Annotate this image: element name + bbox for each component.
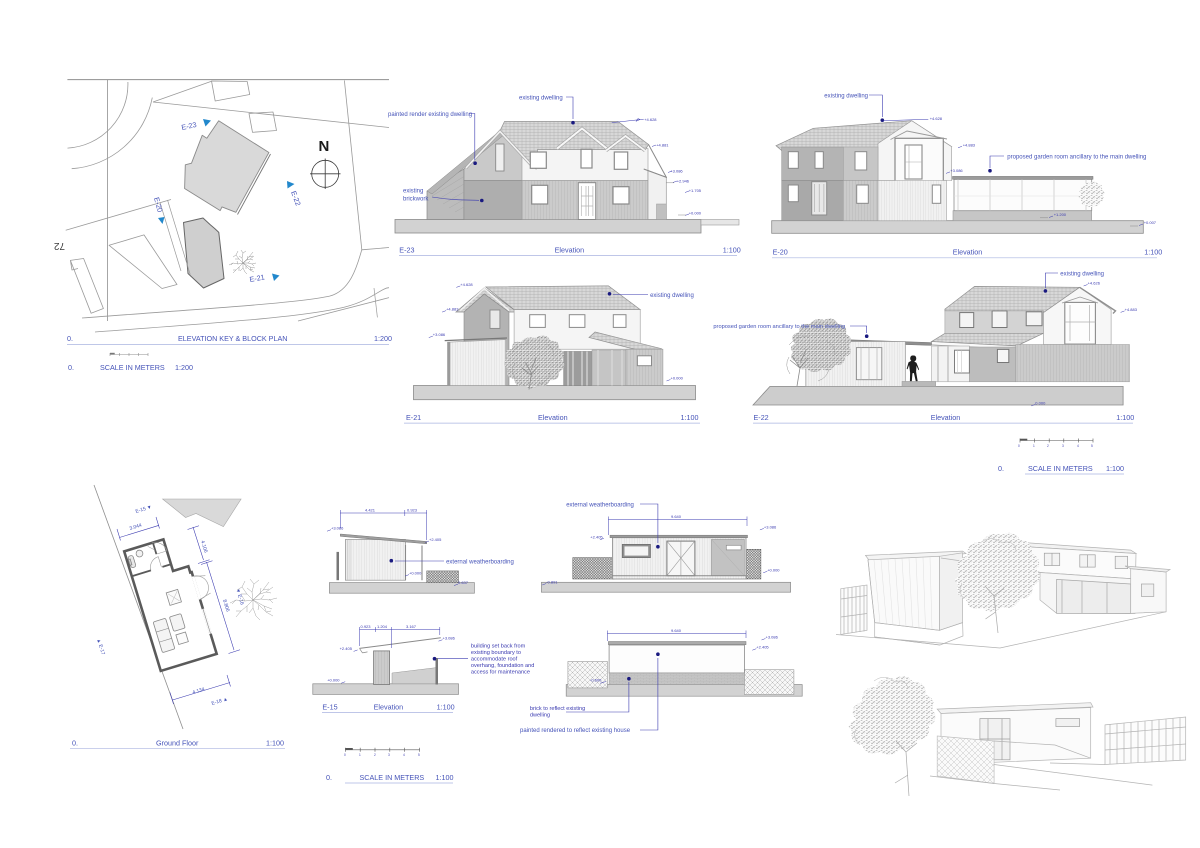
svg-text:+3.086: +3.086: [331, 526, 344, 531]
svg-text:3: 3: [388, 753, 390, 757]
svg-text:+3.086: +3.086: [670, 169, 683, 174]
svg-text:1: 1: [1033, 444, 1035, 448]
svg-text:external weatherboarding: external weatherboarding: [566, 503, 634, 509]
svg-text:1:100: 1:100: [266, 739, 284, 748]
svg-text:1:100: 1:100: [1106, 464, 1124, 473]
svg-text:existing dwelling: existing dwelling: [650, 293, 694, 299]
svg-text:Elevation: Elevation: [538, 413, 568, 422]
svg-text:+2.405: +2.405: [756, 645, 769, 650]
svg-text:access for maintenance: access for maintenance: [471, 670, 530, 676]
svg-text:+1.200: +1.200: [1054, 212, 1067, 217]
svg-text:existing: existing: [403, 189, 423, 195]
svg-text:1:100: 1:100: [436, 773, 454, 782]
svg-text:+4.628: +4.628: [460, 282, 473, 287]
svg-text:5: 5: [418, 753, 420, 757]
svg-text:painted render existing dwelli: painted render existing dwelling: [388, 112, 472, 118]
svg-text:+0.000: +0.000: [767, 567, 780, 572]
svg-text:9.640: 9.640: [671, 628, 682, 633]
svg-text:+3.086: +3.086: [764, 524, 777, 529]
svg-text:Elevation: Elevation: [953, 248, 983, 257]
svg-text:0.: 0.: [67, 334, 73, 343]
svg-text:Elevation: Elevation: [555, 246, 585, 255]
svg-text:ELEVATION KEY & BLOCK PLAN: ELEVATION KEY & BLOCK PLAN: [178, 334, 287, 343]
svg-text:1:100: 1:100: [723, 246, 741, 255]
svg-text:4: 4: [1077, 444, 1079, 448]
svg-text:+2.405: +2.405: [429, 537, 442, 542]
svg-text:E-15: E-15: [322, 703, 337, 712]
svg-text:brick to reflect existing: brick to reflect existing: [530, 706, 585, 712]
svg-text:Ground Floor: Ground Floor: [156, 739, 199, 748]
svg-text:+3.086: +3.086: [433, 332, 446, 337]
svg-text:+2.946: +2.946: [677, 178, 690, 183]
svg-text:overhang, foundation and: overhang, foundation and: [471, 663, 534, 669]
svg-text:+2.405: +2.405: [590, 534, 603, 539]
svg-text:0.000: 0.000: [1035, 400, 1046, 405]
svg-text:3.167: 3.167: [406, 624, 417, 629]
svg-text:+1.705: +1.705: [689, 188, 702, 193]
svg-text:building set back from: building set back from: [471, 644, 526, 650]
svg-text:1:100: 1:100: [681, 413, 699, 422]
svg-text:1:200: 1:200: [175, 363, 193, 372]
svg-text:0: 0: [1018, 444, 1020, 448]
svg-text:SCALE IN METERS: SCALE IN METERS: [360, 773, 425, 782]
svg-text:existing dwelling: existing dwelling: [519, 96, 563, 102]
svg-text:+4.628: +4.628: [644, 117, 657, 122]
svg-text:2: 2: [374, 753, 376, 757]
svg-text:0: 0: [344, 753, 346, 757]
svg-text:proposed garden room ancillary: proposed garden room ancillary to the ma…: [1007, 155, 1146, 161]
svg-text:9.640: 9.640: [671, 514, 682, 519]
svg-text:SCALE IN METERS: SCALE IN METERS: [1028, 464, 1093, 473]
svg-text:SCALE IN METERS: SCALE IN METERS: [100, 363, 165, 372]
svg-text:E-21: E-21: [406, 413, 421, 422]
svg-text:-0.891: -0.891: [546, 580, 558, 585]
svg-text:existing boundary to: existing boundary to: [471, 650, 521, 656]
svg-text:+4.883: +4.883: [1125, 307, 1138, 312]
svg-text:+3.086: +3.086: [766, 635, 779, 640]
svg-text:1:100: 1:100: [1144, 248, 1162, 257]
svg-text:+3.086: +3.086: [443, 636, 456, 641]
svg-text:painted rendered to reflect ex: painted rendered to reflect existing hou…: [520, 728, 631, 734]
svg-text:+0.000: +0.000: [327, 678, 340, 683]
svg-text:proposed garden room ancillary: proposed garden room ancillary to the ma…: [713, 324, 845, 330]
svg-text:E-20: E-20: [773, 248, 788, 257]
svg-text:1: 1: [359, 753, 361, 757]
svg-text:+4.626: +4.626: [1088, 281, 1101, 286]
svg-text:E-22: E-22: [754, 413, 769, 422]
svg-text:1:100: 1:100: [1116, 413, 1134, 422]
svg-text:+0.007: +0.007: [1144, 220, 1157, 225]
svg-text:E-23: E-23: [399, 246, 414, 255]
svg-text:+0.000: +0.000: [671, 376, 684, 381]
svg-text:dwelling: dwelling: [530, 713, 550, 719]
svg-text:-0.600: -0.600: [590, 678, 602, 683]
svg-text:0.923: 0.923: [407, 508, 418, 513]
svg-text:0.637: 0.637: [458, 580, 469, 585]
svg-text:accommodate roof: accommodate roof: [471, 657, 518, 663]
svg-text:3: 3: [1062, 444, 1064, 448]
svg-text:1:100: 1:100: [437, 703, 455, 712]
svg-text:0.: 0.: [68, 363, 74, 372]
svg-text:+3.086: +3.086: [950, 168, 963, 173]
svg-text:1:200: 1:200: [374, 334, 392, 343]
svg-text:existing dwelling: existing dwelling: [824, 94, 868, 100]
svg-text:+4.628: +4.628: [930, 116, 943, 121]
svg-text:existing dwelling: existing dwelling: [1060, 272, 1104, 278]
svg-text:0.: 0.: [998, 464, 1004, 473]
svg-text:+4.883: +4.883: [446, 307, 459, 312]
svg-text:72: 72: [53, 240, 65, 251]
svg-text:external weatherboarding: external weatherboarding: [446, 560, 514, 566]
svg-text:4.421: 4.421: [365, 508, 376, 513]
svg-text:+4.881: +4.881: [656, 143, 669, 148]
svg-text:0.: 0.: [72, 739, 78, 748]
svg-text:Elevation: Elevation: [374, 703, 404, 712]
svg-text:+4.883: +4.883: [963, 142, 976, 147]
svg-text:2: 2: [1047, 444, 1049, 448]
svg-text:+0.000: +0.000: [409, 571, 422, 576]
svg-text:0.: 0.: [326, 773, 332, 782]
svg-text:5: 5: [1091, 444, 1093, 448]
svg-text:brickwork: brickwork: [403, 197, 429, 203]
svg-text:Elevation: Elevation: [931, 413, 961, 422]
svg-text:N: N: [319, 138, 330, 155]
svg-text:1.204: 1.204: [377, 624, 388, 629]
svg-text:4: 4: [403, 753, 405, 757]
svg-text:0.923: 0.923: [361, 624, 372, 629]
svg-text:+0.000: +0.000: [689, 211, 702, 216]
svg-text:+2.405: +2.405: [340, 646, 353, 651]
